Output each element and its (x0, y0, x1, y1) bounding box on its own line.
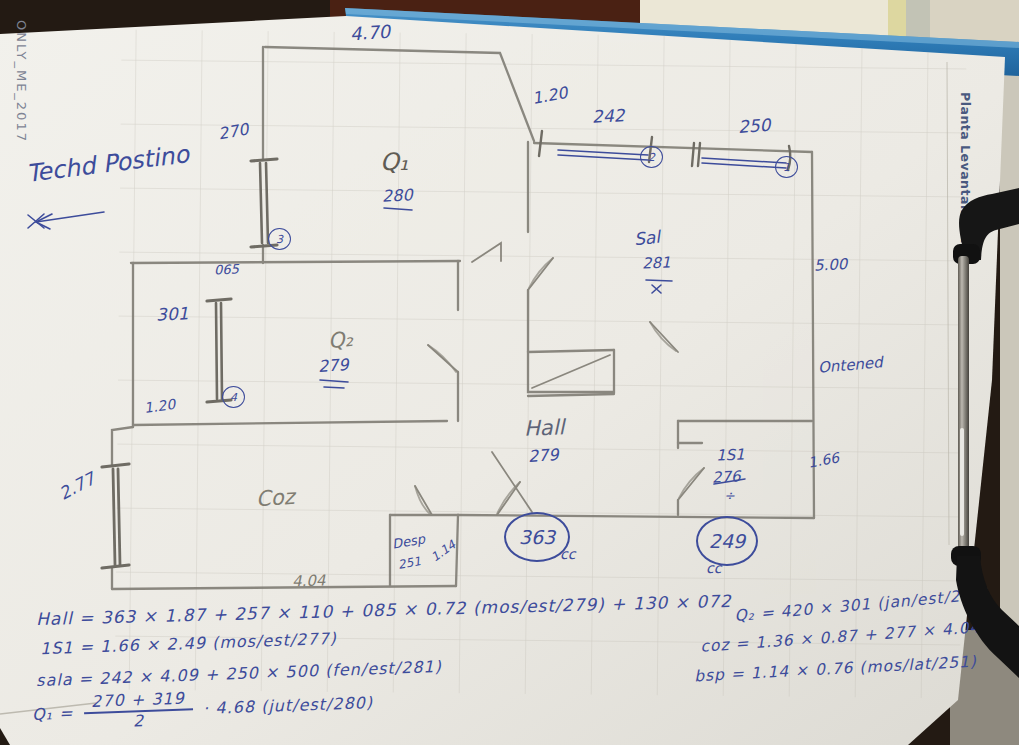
photo-of-floor-plan-sketch: ONLY_ME_2017 Planta Levantamento Techd P… (0, 0, 1019, 745)
dim-242: 242 (591, 105, 624, 127)
dim-250: 250 (737, 115, 771, 137)
dim-280: 280 (382, 185, 413, 206)
equation-q1-rhs: · 4.68 (jut/est/280) (203, 693, 374, 718)
dim-281: 281 (642, 254, 671, 273)
dim-301: 301 (155, 303, 188, 325)
watermark: ONLY_ME_2017 (14, 20, 29, 143)
side-label: Planta Levantamento (958, 92, 973, 252)
label-q1: Q₁ (380, 148, 409, 176)
window-id-2: 2 (640, 146, 663, 168)
divide-mark: ÷ (724, 488, 735, 503)
equation-q1-lhs: Q₁ = (32, 704, 74, 724)
window-id-3: 3 (268, 228, 291, 250)
dim-279-q2: 279 (317, 355, 349, 376)
dim-470: 4.70 (349, 21, 390, 45)
label-q2: Q₂ (327, 327, 354, 353)
label-1s1: 1S1 (716, 446, 745, 465)
cc-mark-249: cc (706, 560, 721, 576)
equation-q1-fraction: 270 + 319 2 (83, 690, 194, 731)
label-sala: Sal (633, 227, 661, 250)
label-hall: Hall (524, 415, 565, 440)
dim-065: 065 (214, 262, 239, 278)
label-coz: Coz (255, 485, 295, 512)
dim-500: 5.00 (814, 255, 848, 275)
cc-mark-363: cc (560, 546, 575, 562)
dim-404: 4.04 (292, 571, 326, 590)
dim-276: 276 (712, 467, 742, 486)
area-circle-249: 249 (696, 516, 758, 566)
window-id-4: 4 (222, 386, 245, 408)
dim-279-hall: 279 (527, 445, 559, 466)
window-id-1: 1 (775, 156, 798, 178)
equation-q1-denominator: 2 (84, 710, 194, 732)
